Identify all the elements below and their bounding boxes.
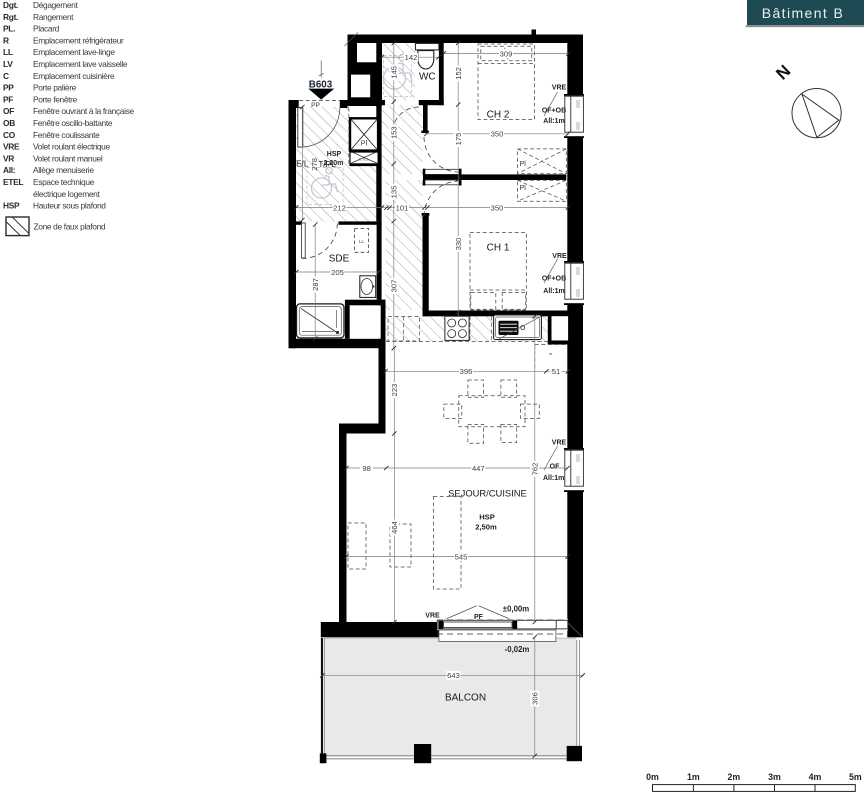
svg-text:VRE: VRE xyxy=(3,142,20,152)
svg-text:LL: LL xyxy=(359,239,365,244)
svg-text:Pl: Pl xyxy=(520,159,527,168)
svg-text:Fenêtre ouvrant à la française: Fenêtre ouvrant à la française xyxy=(33,106,134,116)
svg-text:VRE: VRE xyxy=(552,85,567,92)
svg-text:CO: CO xyxy=(3,130,16,140)
svg-text:101: 101 xyxy=(396,203,409,212)
svg-text:309: 309 xyxy=(500,49,513,58)
svg-text:All:1m: All:1m xyxy=(543,475,564,482)
svg-text:212: 212 xyxy=(333,203,346,212)
svg-text:OF+OB: OF+OB xyxy=(542,276,566,283)
svg-text:Fenêtre coulissante: Fenêtre coulissante xyxy=(33,130,100,140)
svg-text:LL: LL xyxy=(3,47,13,57)
svg-text:WC: WC xyxy=(419,72,436,83)
svg-text:762: 762 xyxy=(530,463,539,476)
svg-text:VRE: VRE xyxy=(552,439,567,446)
svg-text:Fenêtre oscillo-battante: Fenêtre oscillo-battante xyxy=(33,118,113,128)
svg-text:Bâtiment B: Bâtiment B xyxy=(762,5,844,21)
svg-text:OF: OF xyxy=(3,106,14,116)
svg-text:OF+OB: OF+OB xyxy=(542,108,566,115)
svg-text:2,20m: 2,20m xyxy=(324,160,344,167)
svg-text:Emplacement réfrigérateur: Emplacement réfrigérateur xyxy=(33,35,124,45)
svg-text:175: 175 xyxy=(454,133,463,146)
svg-text:R: R xyxy=(3,35,9,45)
svg-text:152: 152 xyxy=(454,67,463,80)
svg-text:CH 1: CH 1 xyxy=(487,243,510,254)
svg-text:330: 330 xyxy=(454,238,463,251)
svg-text:Hauteur sous plafond: Hauteur sous plafond xyxy=(33,201,106,211)
svg-text:1m: 1m xyxy=(687,772,700,782)
svg-text:142: 142 xyxy=(405,53,418,62)
svg-text:145: 145 xyxy=(389,66,398,79)
svg-text:Porte palière: Porte palière xyxy=(33,83,77,93)
svg-text:Pl: Pl xyxy=(520,183,527,192)
svg-text:306: 306 xyxy=(530,692,539,705)
svg-text:LV: LV xyxy=(3,59,13,69)
svg-text:153: 153 xyxy=(389,126,398,139)
svg-text:3m: 3m xyxy=(768,772,781,782)
svg-text:135: 135 xyxy=(389,186,398,199)
svg-text:4m: 4m xyxy=(809,772,822,782)
svg-text:All:: All: xyxy=(3,165,15,175)
svg-text:SDE: SDE xyxy=(329,254,350,265)
svg-text:OB: OB xyxy=(3,118,15,128)
svg-text:396: 396 xyxy=(460,367,473,376)
svg-text:-0,02m: -0,02m xyxy=(505,645,530,654)
svg-text:5m: 5m xyxy=(849,772,862,782)
svg-text:HSP: HSP xyxy=(479,513,495,522)
svg-text:Zone de faux plafond: Zone de faux plafond xyxy=(34,222,106,232)
svg-text:2m: 2m xyxy=(728,772,741,782)
svg-text:Porte fenêtre: Porte fenêtre xyxy=(33,94,78,104)
svg-text:BALCON: BALCON xyxy=(445,693,486,704)
svg-text:350: 350 xyxy=(491,130,504,139)
svg-text:Rgt.: Rgt. xyxy=(3,12,18,22)
svg-text:223: 223 xyxy=(390,384,399,397)
svg-text:All:1m: All:1m xyxy=(543,118,564,125)
svg-text:SEJOUR/CUISINE: SEJOUR/CUISINE xyxy=(448,488,527,499)
svg-text:Volet roulant manuel: Volet roulant manuel xyxy=(33,153,103,163)
svg-text:Espace technique: Espace technique xyxy=(33,177,95,187)
svg-text:PL.: PL. xyxy=(3,24,15,34)
svg-text:2,50m: 2,50m xyxy=(475,523,497,532)
svg-text:électrique logement: électrique logement xyxy=(33,189,100,199)
svg-text:447: 447 xyxy=(472,464,485,473)
svg-text:PF: PF xyxy=(3,94,13,104)
svg-text:0m: 0m xyxy=(646,772,659,782)
svg-text:All:1m: All:1m xyxy=(543,288,564,295)
svg-text:E/L: E/L xyxy=(296,160,309,169)
svg-text:307: 307 xyxy=(389,280,398,293)
svg-text:±0,00m: ±0,00m xyxy=(503,605,529,614)
svg-text:98: 98 xyxy=(362,464,370,473)
svg-text:287: 287 xyxy=(311,278,320,291)
svg-text:OF: OF xyxy=(550,464,560,471)
svg-text:643: 643 xyxy=(447,671,460,680)
svg-text:Dégagement: Dégagement xyxy=(33,0,78,10)
svg-text:Emplacement cuisinière: Emplacement cuisinière xyxy=(33,71,115,81)
svg-text:C: C xyxy=(3,71,9,81)
svg-text:VR: VR xyxy=(3,153,14,163)
svg-text:205: 205 xyxy=(331,268,344,277)
svg-text:Allège menuiserie: Allège menuiserie xyxy=(33,165,94,175)
svg-text:CH 2: CH 2 xyxy=(487,110,510,121)
svg-text:PP: PP xyxy=(3,83,14,93)
svg-text:HSP: HSP xyxy=(3,201,20,211)
svg-text:Emplacement lave-linge: Emplacement lave-linge xyxy=(33,47,115,57)
svg-text:350: 350 xyxy=(491,203,504,212)
svg-text:Volet roulant électrique: Volet roulant électrique xyxy=(33,142,110,152)
svg-text:Emplacement lave vaisselle: Emplacement lave vaisselle xyxy=(33,59,128,69)
svg-text:545: 545 xyxy=(455,552,468,561)
svg-text:PP: PP xyxy=(311,102,320,109)
svg-text:Rangement: Rangement xyxy=(33,12,74,22)
svg-text:Placard: Placard xyxy=(33,24,60,34)
svg-text:464: 464 xyxy=(390,521,399,534)
svg-text:Dgt.: Dgt. xyxy=(3,0,18,10)
svg-text:51: 51 xyxy=(552,367,560,376)
svg-text:HSP: HSP xyxy=(327,151,342,158)
svg-text:Pl: Pl xyxy=(361,139,368,148)
svg-text:VRE: VRE xyxy=(552,253,567,260)
svg-text:VRE: VRE xyxy=(425,612,440,619)
svg-text:ETEL: ETEL xyxy=(3,177,23,187)
svg-text:ETEL: ETEL xyxy=(359,157,370,162)
svg-text:PF: PF xyxy=(474,614,484,621)
